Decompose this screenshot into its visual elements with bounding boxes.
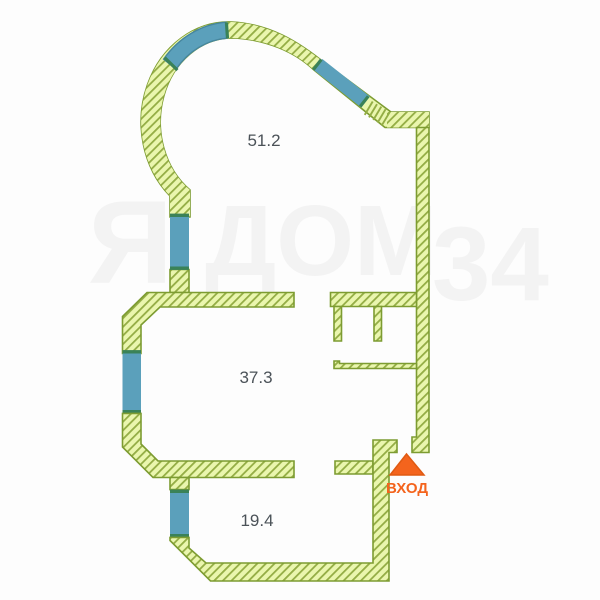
svg-text:51.2: 51.2	[247, 131, 280, 150]
svg-text:Я: Я	[88, 177, 173, 309]
svg-text:ВХОД: ВХОД	[386, 480, 428, 497]
svg-text:37.3: 37.3	[239, 368, 272, 387]
svg-text:34: 34	[432, 206, 549, 323]
svg-text:19.4: 19.4	[240, 511, 273, 530]
svg-text:ДОМ: ДОМ	[205, 185, 437, 297]
